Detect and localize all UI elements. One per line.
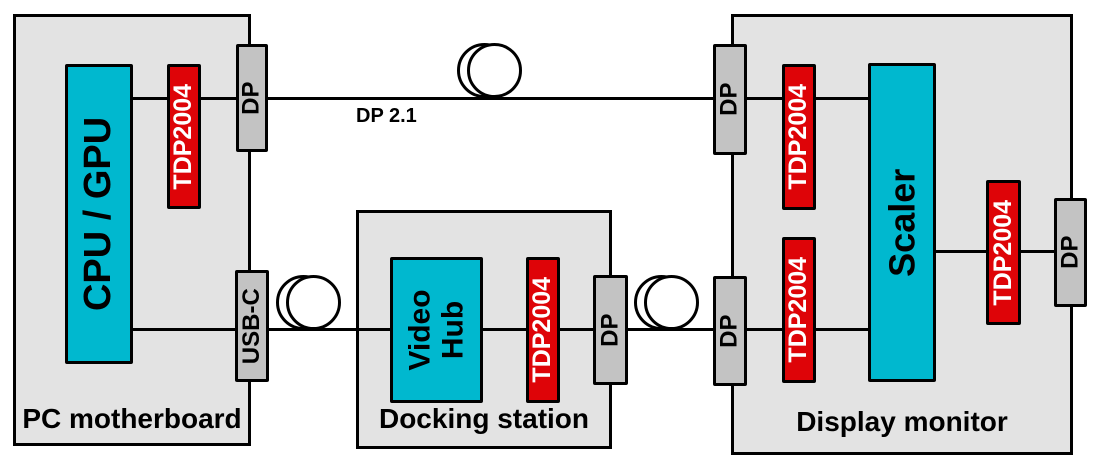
cable-coil-dock-dp bbox=[644, 275, 699, 330]
usb-c-connector-motherboard: USB-C bbox=[235, 270, 269, 382]
tdp2004-label: TDP2004 bbox=[785, 84, 813, 190]
tdp2004-label: TDP2004 bbox=[785, 257, 813, 363]
docking-station-label: Docking station bbox=[359, 403, 609, 435]
scaler-chip: Scaler bbox=[868, 63, 936, 382]
tdp2004-label: TDP2004 bbox=[990, 200, 1018, 306]
cable-coil-dp21 bbox=[467, 43, 522, 98]
video-hub-label: Video Hub bbox=[403, 289, 469, 370]
scaler-label: Scaler bbox=[882, 168, 922, 276]
usb-c-connector-label: USB-C bbox=[239, 288, 265, 364]
dp-connector-motherboard: DP bbox=[236, 44, 268, 152]
dp-connector-label: DP bbox=[597, 313, 623, 346]
display-monitor-label: Display monitor bbox=[734, 406, 1070, 438]
dp-connector-monitor-bottom: DP bbox=[713, 276, 747, 386]
tdp2004-label: TDP2004 bbox=[170, 84, 198, 190]
dp-connector-dock: DP bbox=[593, 275, 628, 385]
dp-connector-monitor-top: DP bbox=[713, 44, 747, 155]
tdp2004-redriver-monitor-top: TDP2004 bbox=[782, 64, 816, 210]
cable-coil-usbc bbox=[286, 275, 341, 330]
block-diagram: DP 2.1 PC motherboard Docking station Di… bbox=[0, 0, 1100, 471]
video-hub-chip: Video Hub bbox=[390, 257, 483, 403]
dp-connector-label: DP bbox=[717, 83, 743, 116]
video-hub-line1: Video bbox=[403, 289, 436, 370]
tdp2004-redriver-motherboard: TDP2004 bbox=[167, 64, 201, 209]
dp-connector-label: DP bbox=[717, 314, 743, 347]
dp21-link-label: DP 2.1 bbox=[356, 105, 417, 128]
dp-connector-label: DP bbox=[239, 81, 265, 114]
pc-motherboard-label: PC motherboard bbox=[16, 403, 248, 435]
video-hub-line2: Hub bbox=[436, 289, 469, 370]
tdp2004-redriver-dock: TDP2004 bbox=[526, 257, 560, 403]
tdp2004-label: TDP2004 bbox=[529, 277, 557, 383]
dp-connector-monitor-out: DP bbox=[1054, 198, 1087, 307]
cpu-gpu-chip: CPU / GPU bbox=[65, 64, 133, 364]
tdp2004-redriver-monitor-bottom: TDP2004 bbox=[782, 237, 816, 383]
dp-connector-label: DP bbox=[1057, 236, 1083, 269]
tdp2004-redriver-monitor-out: TDP2004 bbox=[986, 180, 1021, 325]
cpu-gpu-label: CPU / GPU bbox=[78, 117, 120, 311]
